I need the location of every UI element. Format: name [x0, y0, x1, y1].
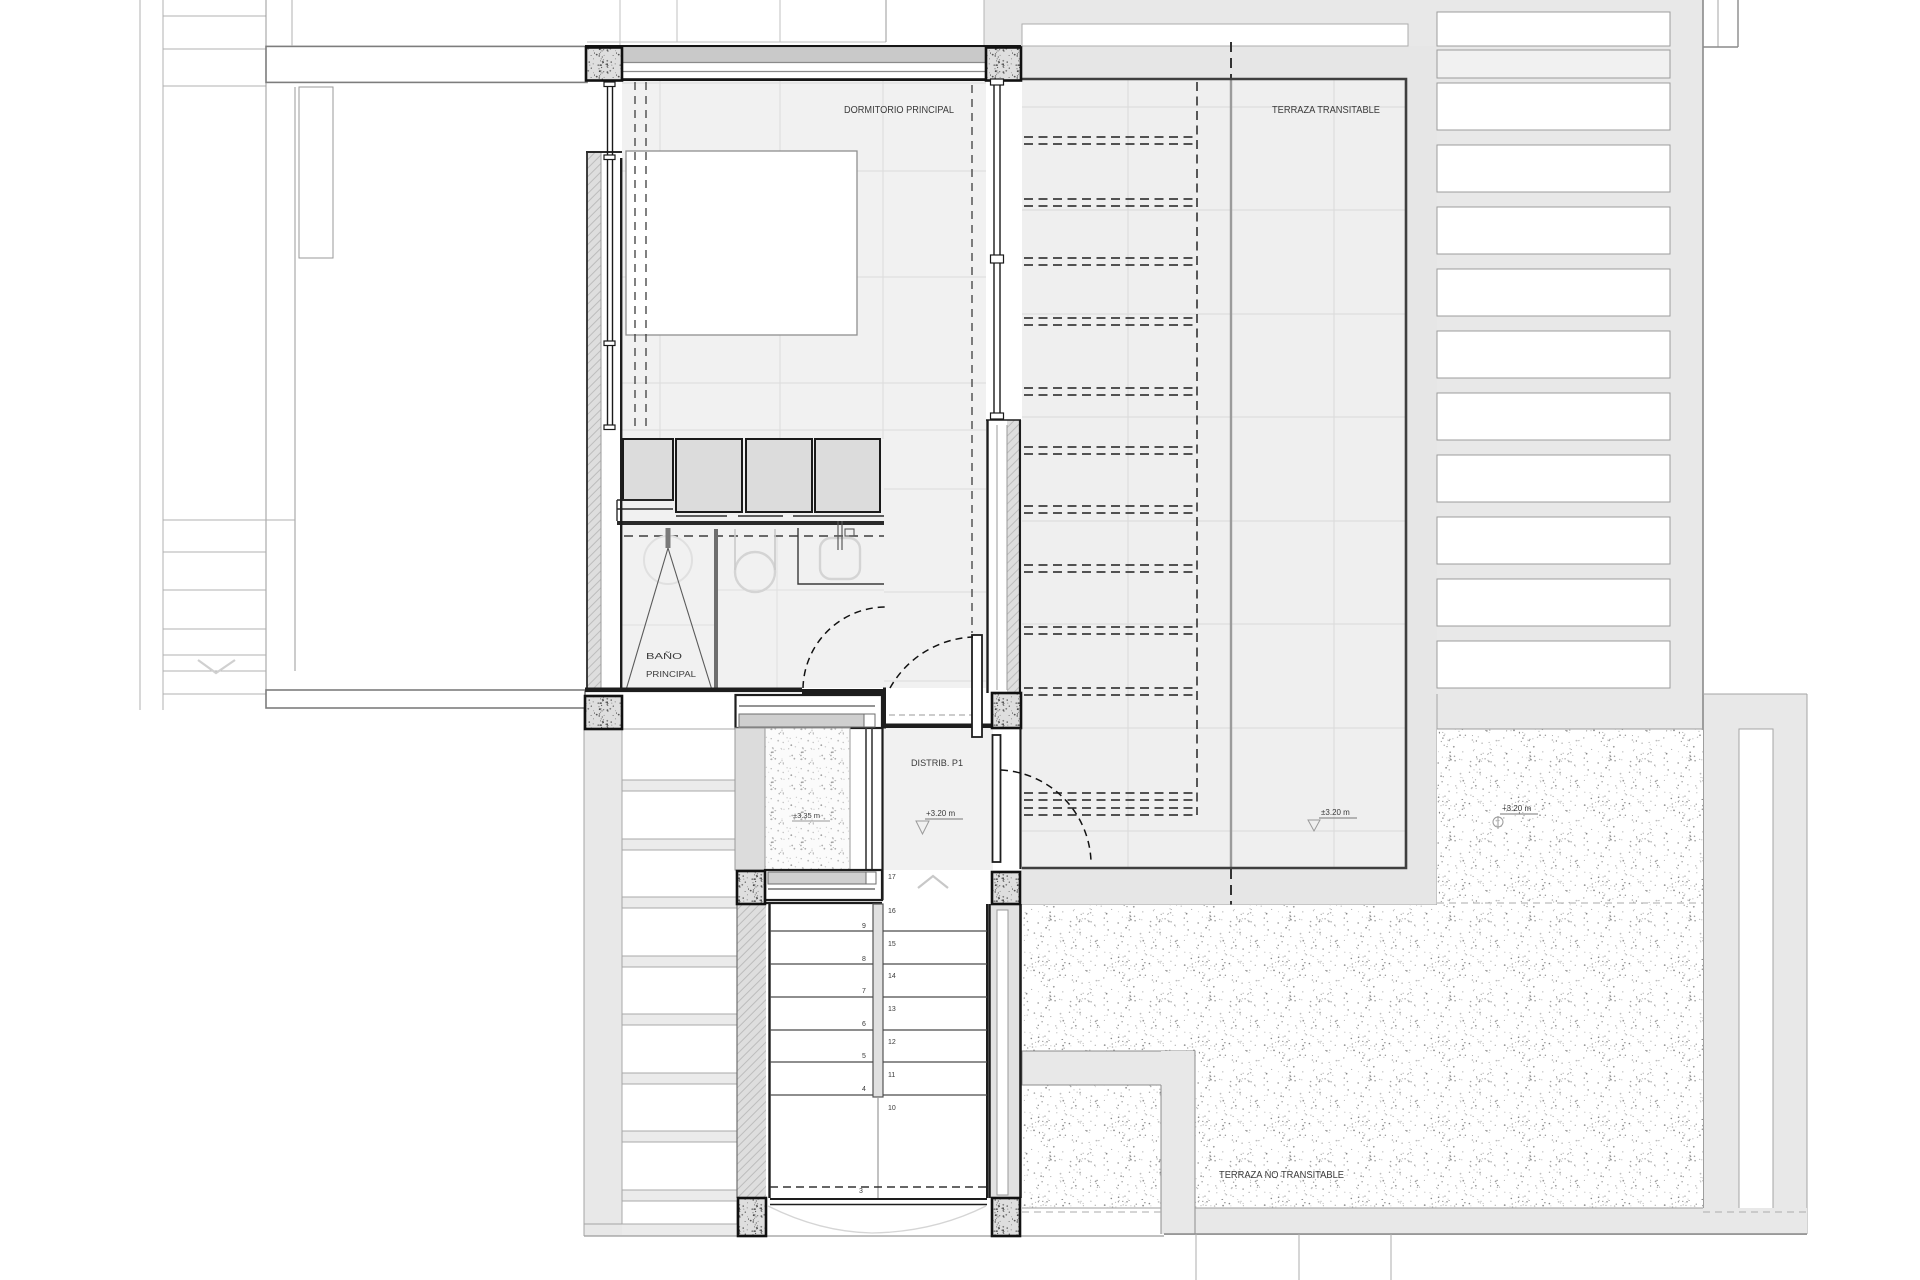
svg-text:TERRAZA TRANSITABLE: TERRAZA TRANSITABLE: [1272, 105, 1380, 116]
svg-text:4: 4: [862, 1086, 866, 1093]
svg-text:8: 8: [862, 956, 866, 963]
svg-text:13: 13: [888, 1006, 896, 1013]
svg-text:+3.20 m: +3.20 m: [926, 809, 955, 818]
svg-text:17: 17: [888, 874, 896, 881]
svg-text:7: 7: [862, 988, 866, 995]
svg-text:11: 11: [888, 1072, 895, 1079]
svg-text:9: 9: [862, 923, 866, 930]
svg-text:BAÑO: BAÑO: [646, 651, 683, 661]
svg-text:+3.20 m: +3.20 m: [1502, 804, 1531, 813]
svg-text:DORMITORIO PRINCIPAL: DORMITORIO PRINCIPAL: [844, 105, 954, 116]
svg-text:TERRAZA NO TRANSITABLE: TERRAZA NO TRANSITABLE: [1219, 1170, 1344, 1181]
svg-text:DISTRIB. P1: DISTRIB. P1: [911, 758, 963, 768]
svg-text:5: 5: [862, 1053, 866, 1060]
svg-text:6: 6: [862, 1021, 866, 1028]
svg-text:15: 15: [888, 941, 896, 948]
svg-text:10: 10: [888, 1105, 896, 1112]
svg-text:±3.35 m: ±3.35 m: [793, 811, 820, 820]
svg-text:3: 3: [859, 1188, 863, 1195]
svg-text:16: 16: [888, 908, 896, 915]
svg-text:PRINCIPAL: PRINCIPAL: [646, 669, 696, 679]
svg-text:12: 12: [888, 1039, 896, 1046]
svg-text:±3.20 m: ±3.20 m: [1321, 808, 1350, 817]
svg-text:14: 14: [888, 973, 896, 980]
